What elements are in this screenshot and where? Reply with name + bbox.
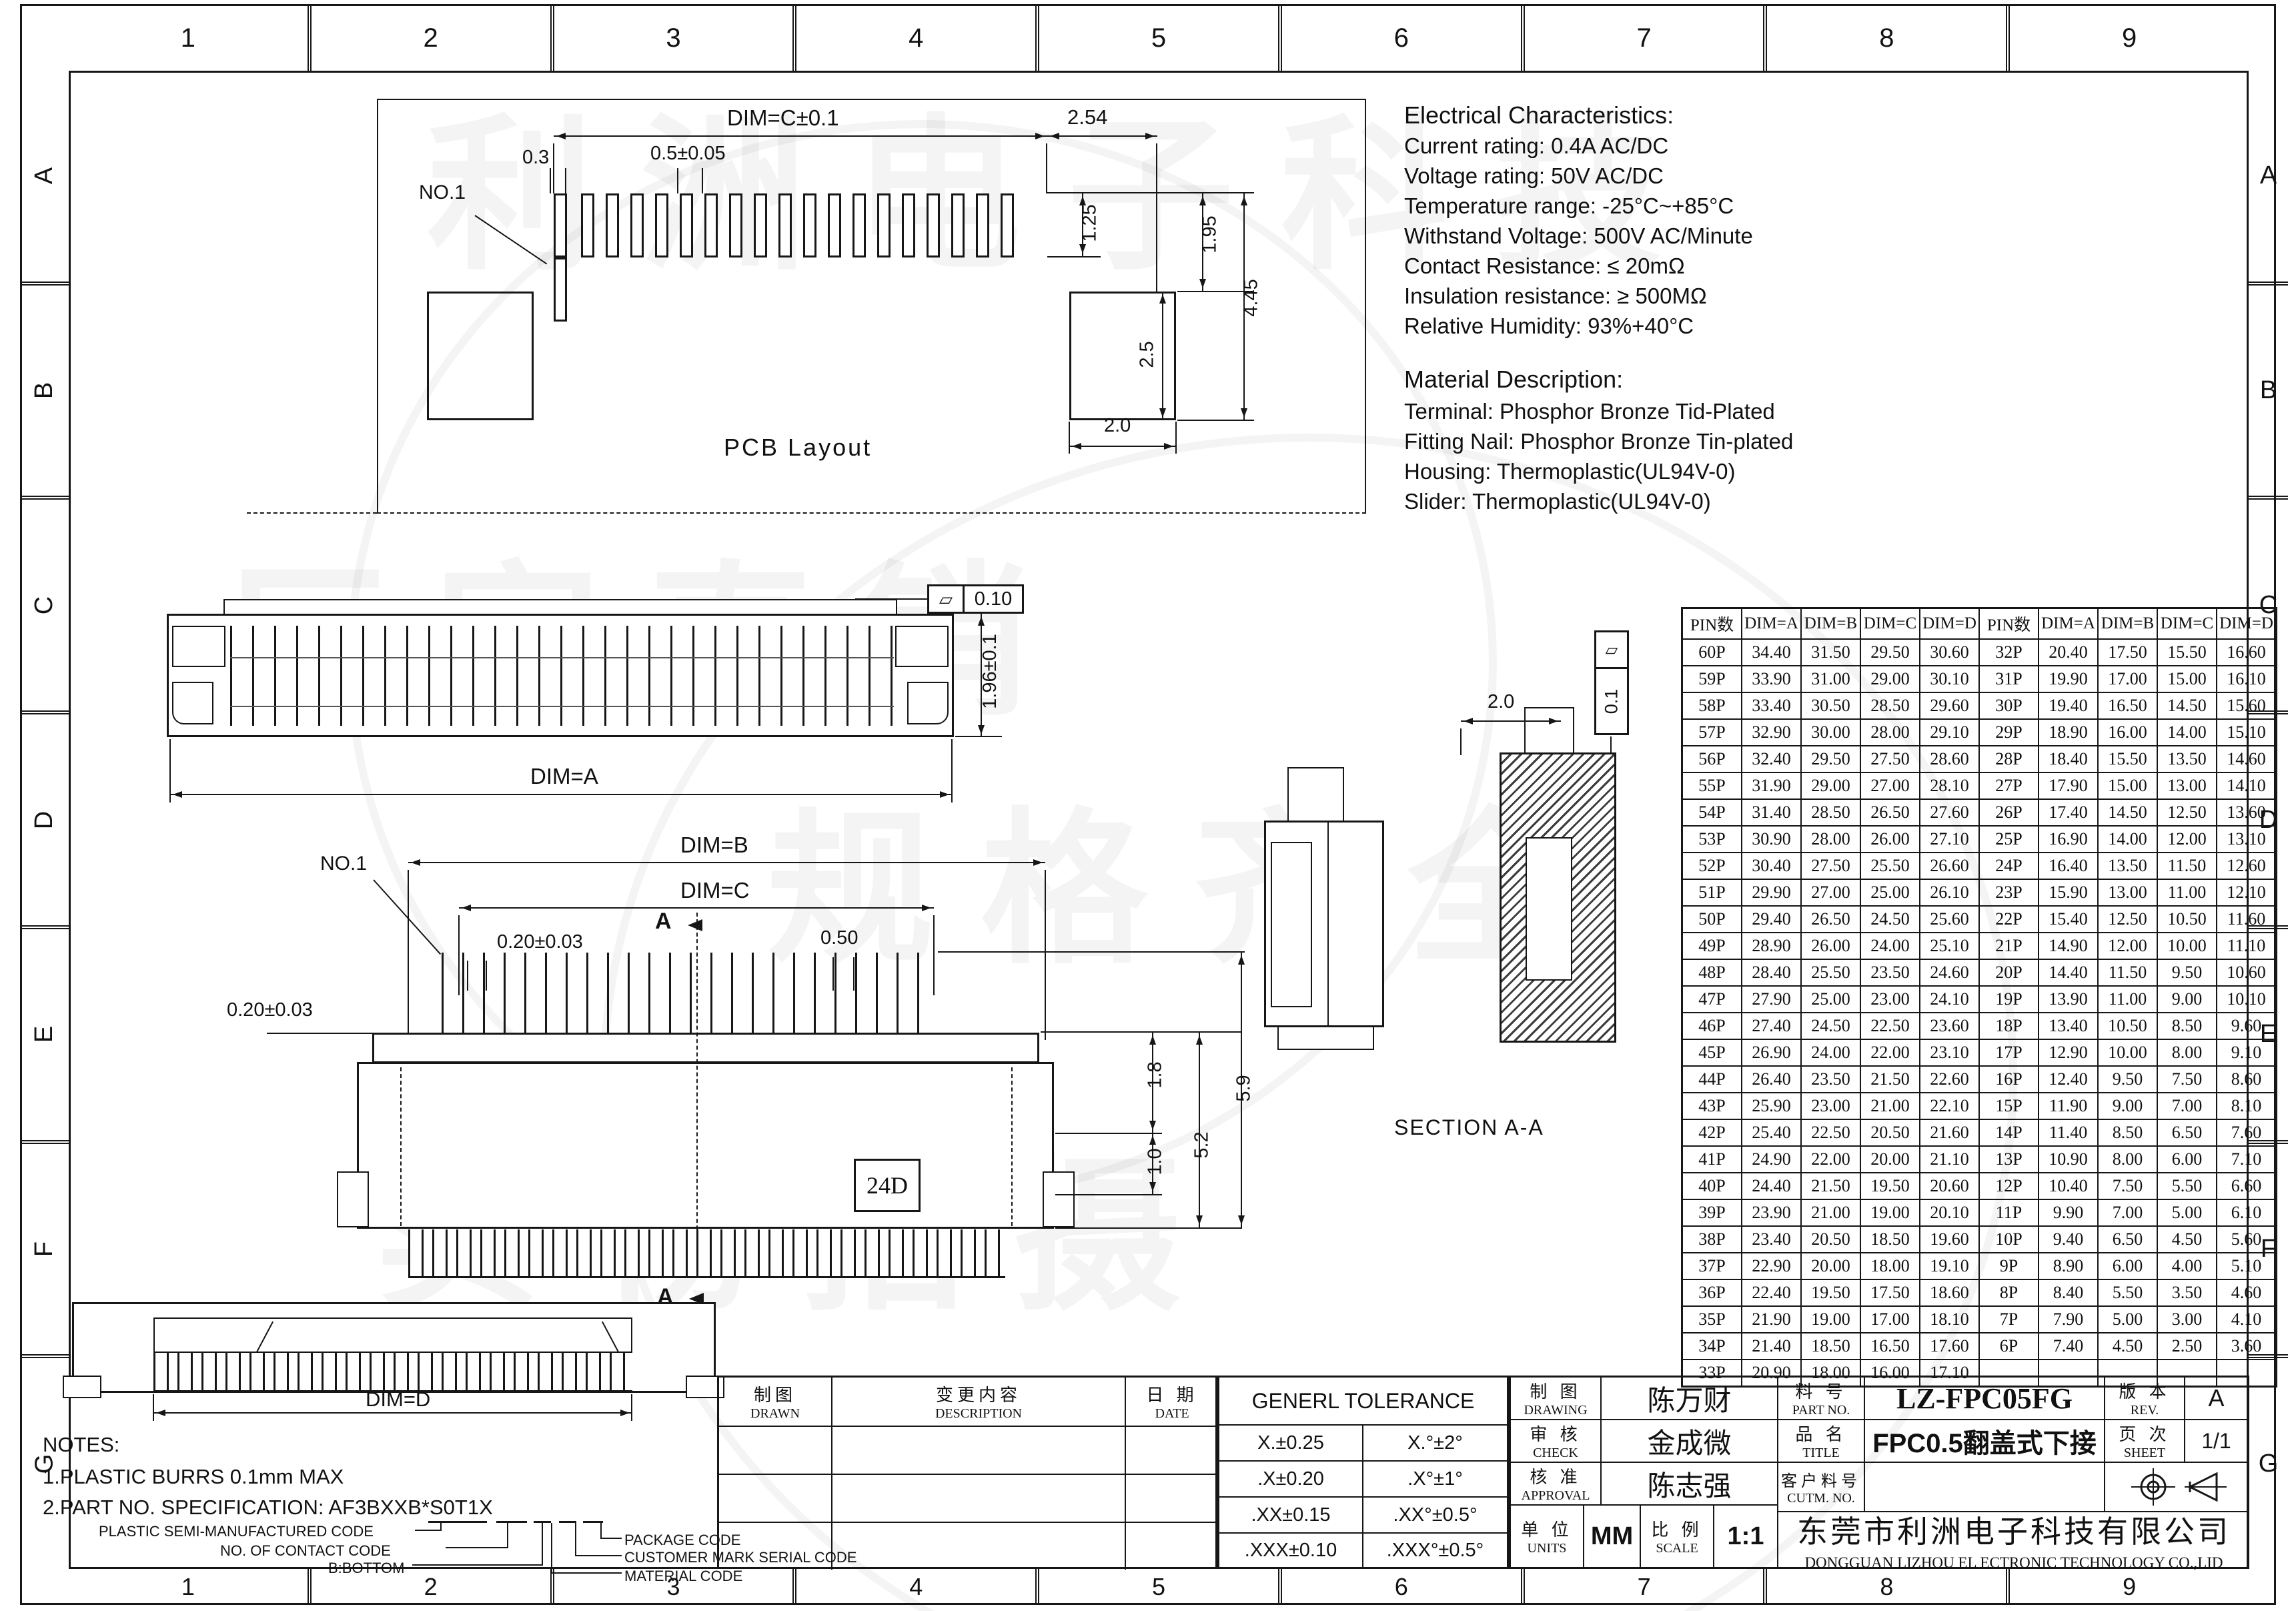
section-side-foot — [1277, 1026, 1374, 1050]
electrical-line: Current rating: 0.4A AC/DC — [1404, 133, 1668, 159]
dim-label-254: 2.54 — [1067, 105, 1107, 129]
tolerance-cell: .XX±0.15 — [1219, 1498, 1363, 1534]
pin-count-label: 24D — [867, 1171, 908, 1199]
titleblock-value-partno: LZ-FPC05FG — [1865, 1378, 2105, 1420]
titleblock-value-scale: 1:1 — [1714, 1506, 1778, 1567]
flatness-value: 0.10 — [963, 584, 1024, 614]
tolerance-cell: X.°±2° — [1363, 1426, 1507, 1462]
section-arrow-icon — [682, 919, 702, 931]
extension-line — [951, 739, 953, 802]
zone-label: 8 — [1767, 6, 2010, 71]
topview-end-right2 — [907, 682, 949, 724]
extension-line — [1047, 256, 1101, 257]
bottomview-tab-left — [63, 1376, 101, 1398]
company-name-zh: 东莞市利洲电子科技有限公司 — [1797, 1508, 2231, 1552]
extension-line — [1175, 422, 1177, 454]
topview-contact-comb — [230, 626, 894, 726]
zone-label: B — [2249, 286, 2288, 500]
dimension-table: PIN数DIM=ADIM=BDIM=CDIM=DPIN数DIM=ADIM=BDI… — [1681, 607, 2277, 1388]
pcb-mount-pad-right — [1069, 292, 1176, 420]
pcb-pad — [606, 193, 619, 257]
pcb-pad — [877, 193, 891, 257]
pcb-pad — [976, 193, 989, 257]
pcb-pad — [581, 193, 594, 257]
revision-row-cell — [1126, 1475, 1218, 1523]
revision-header-description: 变更内容DESCRIPTION — [832, 1378, 1126, 1427]
revision-header-date: 日 期DATE — [1126, 1378, 1218, 1427]
section-marker-a-top: A — [655, 909, 672, 935]
leader-line — [855, 598, 927, 600]
pcb-layout-caption: PCB Layout — [724, 434, 872, 462]
zone-label: 5 — [1039, 1569, 1282, 1605]
flatness-frame-rotated: ▱ 0.1 — [1594, 630, 1629, 735]
zone-strip-top: 1 2 3 4 5 6 7 8 9 — [69, 6, 2249, 71]
code-label-material: MATERIAL CODE — [624, 1568, 742, 1585]
dim-label-195: 1.95 — [1199, 215, 1221, 253]
title-block: 制 图DRAWING 陈万财 审 核CHECK 金成微 核 准APPROVAL … — [1509, 1376, 2249, 1569]
electrical-line: Contact Resistance: ≤ 20mΩ — [1404, 253, 1685, 279]
zone-strip-left: A B C D E F G — [20, 71, 69, 1569]
pcb-pad — [902, 193, 915, 257]
material-line: Fitting Nail: Phosphor Bronze Tin-plated — [1404, 429, 1793, 454]
material-title: Material Description: — [1404, 366, 1623, 394]
front-housing-top — [372, 1033, 1039, 1063]
titleblock-value-drawing: 陈万财 — [1602, 1378, 1778, 1420]
extension-line — [1055, 1133, 1162, 1134]
dim-label-05: 0.5±0.05 — [650, 143, 726, 165]
company-cell: 东莞市利洲电子科技有限公司 DONGGUAN LIZHOU EL ECTRONI… — [1778, 1512, 2249, 1567]
zone-label: E — [20, 929, 69, 1144]
pcb-pad — [630, 193, 644, 257]
dim-line-dimb — [408, 862, 1045, 863]
section-side-inner — [1271, 842, 1312, 1007]
pcb-pad — [778, 193, 792, 257]
pcb-pad — [828, 193, 841, 257]
titleblock-value-title: FPC0.5翻盖式下接 — [1865, 1420, 2105, 1463]
zone-label: C — [20, 500, 69, 714]
dashed-extension-line — [247, 512, 377, 514]
section-cut-tab — [1524, 707, 1574, 754]
third-angle-projection-icon — [2123, 1467, 2230, 1507]
pcb-pad — [655, 193, 668, 257]
zone-label: B — [20, 286, 69, 500]
zone-label: 9 — [2010, 1569, 2249, 1605]
dim-label-10: 1.0 — [1145, 1148, 1167, 1175]
extension-line — [1046, 143, 1047, 193]
section-caption: SECTION A-A — [1394, 1115, 1544, 1140]
engineering-drawing-sheet: 利洲电子科技 厂家直销 规格齐全 实物拍摄 1 2 3 4 5 6 7 8 9 … — [0, 0, 2296, 1611]
electrical-line: Insulation resistance: ≥ 500MΩ — [1404, 284, 1707, 309]
tolerance-cell: .XXX°±0.5° — [1363, 1534, 1507, 1567]
tolerance-title: GENERL TOLERANCE — [1219, 1378, 1507, 1426]
front-ear-right — [1043, 1171, 1075, 1227]
dim-label-dimc2: DIM=C — [680, 878, 750, 903]
company-name-en: DONGGUAN LIZHOU EL ECTRONIC TECHNOLOGY C… — [1804, 1554, 2223, 1572]
flatness-icon: ▱ — [1594, 630, 1629, 669]
titleblock-label-partno: 料 号PART NO. — [1778, 1378, 1865, 1420]
code-underline — [496, 1521, 527, 1523]
pcb-pad — [803, 193, 816, 257]
revision-header-drawn: 制图DRAWN — [719, 1378, 832, 1427]
hidden-line — [1011, 1067, 1013, 1226]
code-underline — [428, 1521, 487, 1523]
flatness-icon: ▱ — [927, 584, 965, 614]
electrical-line: Temperature range: -25°C~+85°C — [1404, 193, 1734, 219]
dim-line-25 — [1162, 292, 1163, 420]
zone-label: G — [2249, 1358, 2288, 1569]
extension-line — [955, 612, 1002, 614]
code-line — [575, 1523, 576, 1556]
dim-label-dimc: DIM=C±0.1 — [727, 105, 839, 131]
titleblock-label-sheet: 页 次SHEET — [2105, 1420, 2185, 1463]
front-housing-main — [357, 1062, 1054, 1229]
zone-label: 4 — [796, 1569, 1039, 1605]
zone-label: 2 — [312, 6, 554, 71]
extension-line — [1069, 422, 1070, 454]
material-line: Slider: Thermoplastic(UL94V-0) — [1404, 489, 1711, 514]
dim-line-dimc — [554, 135, 1047, 137]
electrical-title: Electrical Characteristics: — [1404, 101, 1674, 129]
code-line — [415, 1530, 442, 1531]
electrical-line: Voltage rating: 50V AC/DC — [1404, 163, 1664, 189]
revision-row-cell — [1126, 1523, 1218, 1570]
titleblock-value-approval: 陈志强 — [1602, 1463, 1778, 1506]
center-line — [696, 913, 698, 1276]
pcb-pad — [554, 257, 567, 322]
titleblock-label-check: 审 核CHECK — [1511, 1420, 1602, 1463]
extension-line — [955, 736, 1002, 737]
topview-end-right — [895, 626, 949, 667]
titleblock-label-title: 品 名TITLE — [1778, 1420, 1865, 1463]
code-line — [575, 1555, 622, 1556]
dim-label-52: 5.2 — [1191, 1131, 1213, 1158]
extension-line — [169, 739, 171, 802]
code-underline — [559, 1521, 576, 1523]
note-2: 2.PART NO. SPECIFICATION: AF3BXXB*S0T1X — [43, 1496, 493, 1520]
dim-line-dimd — [153, 1412, 632, 1414]
flatness-value: 0.1 — [1594, 667, 1629, 735]
pcb-pad-row — [554, 193, 1047, 257]
zone-label: A — [2249, 71, 2288, 286]
tick — [677, 168, 678, 193]
electrical-line: Withstand Voltage: 500V AC/Minute — [1404, 223, 1753, 249]
zone-label: 1 — [69, 1569, 312, 1605]
section-cut-slot — [1526, 837, 1572, 981]
topview-end-left2 — [172, 682, 213, 724]
revision-row-cell — [832, 1427, 1126, 1475]
leader-line — [1610, 736, 1612, 754]
zone-label: G — [20, 1358, 69, 1569]
dim-line-sec20 — [1461, 720, 1561, 722]
code-line — [446, 1547, 508, 1548]
dim-label-125: 1.25 — [1079, 204, 1101, 241]
titleblock-label-scale: 比 例SCALE — [1641, 1506, 1714, 1567]
dim-label-196: 1.96±0.1 — [979, 634, 1001, 709]
dim-label-off2: 0.20±0.03 — [227, 999, 313, 1021]
zone-label: 7 — [1525, 1569, 1768, 1605]
projection-symbol-cell — [2105, 1463, 2247, 1512]
dim-label-25: 2.5 — [1137, 341, 1159, 368]
code-label-bottom: B:BOTTOM — [328, 1560, 405, 1577]
zone-label: A — [20, 71, 69, 286]
pcb-pad — [680, 193, 693, 257]
dim-label-pitch: 0.50 — [820, 927, 858, 949]
pcb-pad — [754, 193, 767, 257]
extension-line — [1055, 1227, 1242, 1229]
code-line — [507, 1523, 508, 1548]
dim-line-52 — [1199, 1033, 1200, 1227]
code-line — [412, 1564, 543, 1566]
notes-title: NOTES: — [43, 1433, 119, 1457]
code-line — [600, 1523, 602, 1539]
ref-label-no1-front: NO.1 — [320, 853, 367, 875]
tick — [702, 168, 703, 193]
extension-line — [1047, 192, 1254, 193]
topview-end-left — [172, 626, 225, 667]
front-pin-row — [442, 953, 937, 1041]
front-ear-left — [337, 1171, 369, 1227]
pcb-mount-pad-left — [427, 292, 534, 420]
titleblock-label-cutm: 客户料号CUTM. NO. — [1778, 1463, 1865, 1512]
revision-row-cell — [719, 1427, 832, 1475]
dim-label-20: 2.0 — [1104, 415, 1131, 437]
revision-row-cell — [832, 1475, 1126, 1523]
comb-midline — [230, 657, 894, 658]
pcb-pad — [554, 193, 567, 257]
pcb-pad — [852, 193, 866, 257]
titleblock-label-rev: 版 本REV. — [2105, 1378, 2185, 1420]
extension-line — [408, 870, 409, 1040]
zone-label: F — [20, 1144, 69, 1359]
extension-line — [153, 1394, 154, 1421]
tolerance-table: GENERL TOLERANCE X.±0.25 X.°±2° .X±0.20 … — [1217, 1376, 1509, 1569]
code-label-contact: NO. OF CONTACT CODE — [220, 1542, 391, 1560]
pcb-pad — [729, 193, 742, 257]
dim-label-off1: 0.20±0.03 — [497, 931, 583, 953]
zone-label: 6 — [1282, 1569, 1525, 1605]
pcb-pad — [951, 193, 965, 257]
tolerance-cell: .XXX±0.10 — [1219, 1534, 1363, 1567]
extension-line — [1045, 870, 1046, 1040]
tick — [565, 168, 566, 193]
dim-line-dima — [170, 794, 952, 795]
flatness-frame: ▱ 0.10 — [927, 584, 1024, 614]
dim-label-445: 4.45 — [1241, 279, 1263, 316]
zone-label: 4 — [796, 6, 1039, 71]
bottomview-band — [153, 1317, 632, 1353]
pin-count-box: 24D — [854, 1159, 921, 1212]
code-line — [551, 1523, 552, 1574]
dim-line-20 — [1069, 446, 1176, 447]
material-line: Housing: Thermoplastic(UL94V-0) — [1404, 459, 1735, 484]
zone-label: 6 — [1282, 6, 1525, 71]
code-label-plastic: PLASTIC SEMI-MANUFACTURED CODE — [99, 1523, 374, 1540]
extension-line — [938, 951, 1245, 953]
zone-label: 9 — [2010, 6, 2249, 71]
titleblock-label-units: 单 位UNITS — [1511, 1506, 1584, 1567]
front-bottom-comb — [408, 1229, 1005, 1278]
dim-label-59: 5.9 — [1233, 1075, 1255, 1101]
code-line — [551, 1572, 622, 1574]
revision-row-cell — [1126, 1427, 1218, 1475]
extension-line — [1041, 1031, 1241, 1033]
tolerance-cell: .XX°±0.5° — [1363, 1498, 1507, 1534]
hidden-line — [400, 1067, 402, 1226]
pcb-pad — [1001, 193, 1014, 257]
extension-line — [1055, 1194, 1162, 1195]
revision-table: 制图DRAWN 变更内容DESCRIPTION 日 期DATE — [717, 1376, 1217, 1569]
extension-line — [553, 143, 554, 193]
dim-label-dimb: DIM=B — [680, 833, 748, 858]
titleblock-value-cutm — [1865, 1463, 2105, 1512]
extension-line — [631, 1394, 632, 1421]
zone-label: 7 — [1525, 6, 1768, 71]
revision-row-cell — [719, 1523, 832, 1570]
dim-label-sec20: 2.0 — [1488, 691, 1514, 713]
tolerance-cell: .X±0.20 — [1219, 1462, 1363, 1498]
titleblock-label-drawing: 制 图DRAWING — [1511, 1378, 1602, 1420]
material-line: Terminal: Phosphor Bronze Tid-Plated — [1404, 399, 1775, 424]
zone-label: 5 — [1039, 6, 1282, 71]
dim-label-18: 1.8 — [1145, 1061, 1167, 1088]
note-1: 1.PLASTIC BURRS 0.1mm MAX — [43, 1465, 344, 1489]
extension-line — [1460, 728, 1462, 755]
titleblock-value-rev: A — [2185, 1378, 2247, 1420]
tolerance-cell: .X°±1° — [1363, 1462, 1507, 1498]
electrical-line: Relative Humidity: 93%+40°C — [1404, 314, 1694, 339]
dim-label-dimd: DIM=D — [366, 1388, 430, 1412]
revision-row-cell — [719, 1475, 832, 1523]
titleblock-value-units: MM — [1584, 1506, 1641, 1567]
dim-label-dima: DIM=A — [530, 764, 598, 789]
ref-label-no1: NO.1 — [419, 181, 466, 204]
code-line — [600, 1538, 622, 1539]
pcb-pad — [927, 193, 940, 257]
titleblock-value-check: 金成微 — [1602, 1420, 1778, 1463]
zone-label: 8 — [1767, 1569, 2010, 1605]
dim-label-03: 0.3 — [522, 147, 549, 169]
dim-line-dimc2 — [459, 907, 934, 909]
zone-label: 1 — [69, 6, 312, 71]
extension-line — [1156, 143, 1157, 294]
pcb-pad — [704, 193, 718, 257]
comb-midline — [230, 706, 894, 707]
bottomview-comb — [153, 1353, 632, 1392]
section-side-line — [1327, 821, 1329, 1027]
titleblock-label-approval: 核 准APPROVAL — [1511, 1463, 1602, 1506]
section-side-top-tab — [1287, 767, 1344, 824]
tick — [550, 168, 551, 193]
code-line — [542, 1523, 543, 1566]
zone-label: 3 — [554, 6, 797, 71]
dim-line-254 — [1047, 135, 1157, 137]
tolerance-cell: X.±0.25 — [1219, 1426, 1363, 1462]
zone-label: D — [20, 714, 69, 929]
revision-row-cell — [832, 1523, 1126, 1570]
titleblock-value-sheet: 1/1 — [2185, 1420, 2247, 1463]
